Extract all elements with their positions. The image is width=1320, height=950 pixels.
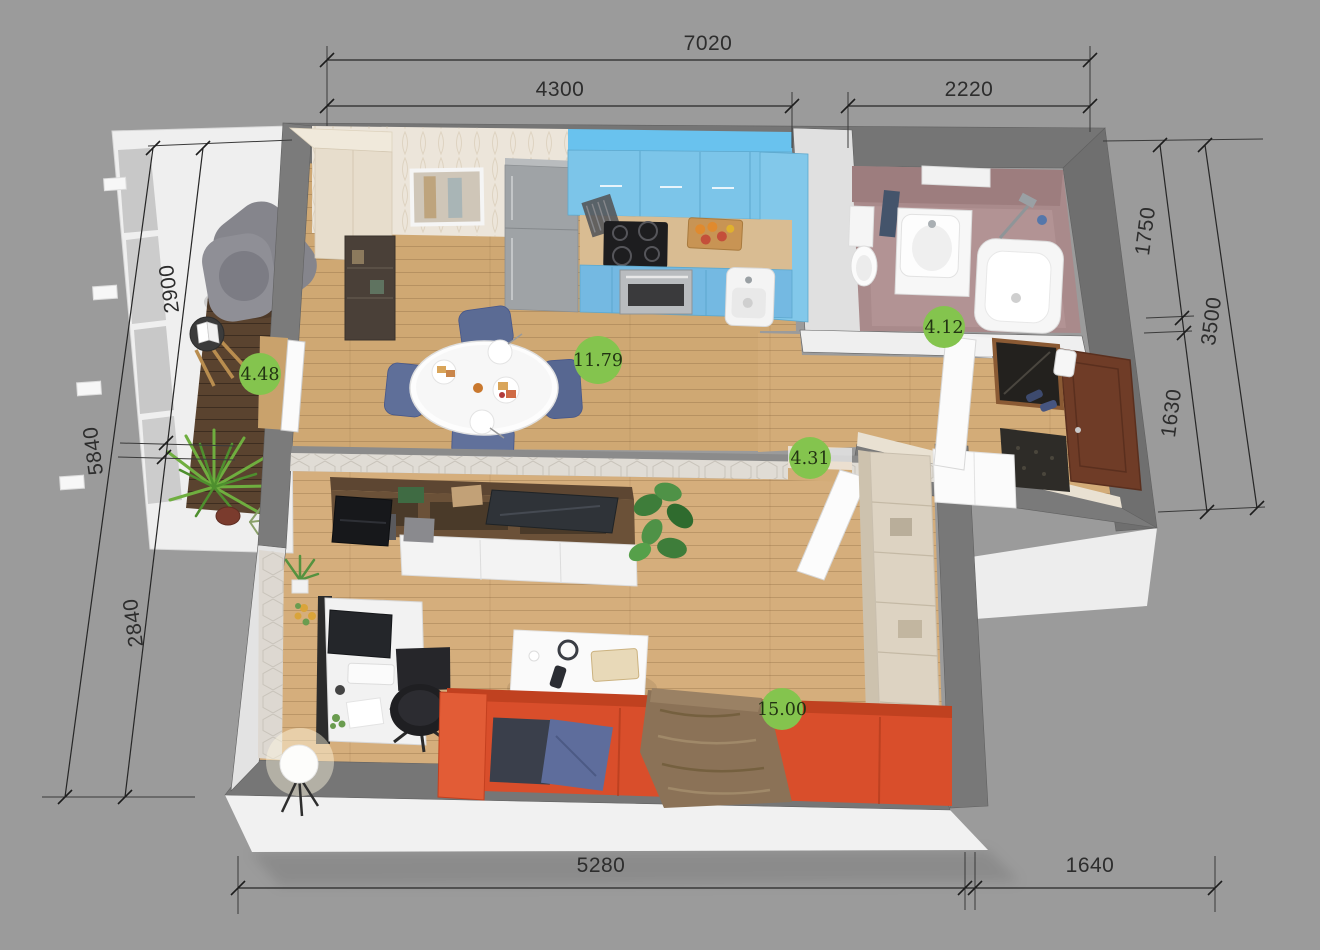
dim-top-left: 4300 <box>536 78 585 101</box>
area-badge-bathroom: 4.12 <box>923 306 965 348</box>
dim-bottom-right: 1640 <box>1066 854 1115 877</box>
sofa-arm <box>438 692 487 800</box>
shampoo-bottle <box>1037 215 1047 225</box>
plate <box>470 410 494 434</box>
oven <box>620 270 692 314</box>
hallway-area-value: 4.31 <box>791 449 830 469</box>
cooktop <box>603 221 668 268</box>
toilet <box>849 206 877 286</box>
washbasin-unit <box>895 208 972 297</box>
living-area-value: 15.00 <box>757 700 807 720</box>
kitchen-sink <box>725 267 775 327</box>
bathroom-shelf <box>922 166 990 187</box>
monitor <box>328 610 392 658</box>
fruit-board <box>687 218 742 251</box>
papers <box>346 698 383 728</box>
bathroom <box>849 166 1081 334</box>
dessert-plate <box>493 377 519 403</box>
area-badge-balcony: 4.48 <box>239 353 281 395</box>
books <box>398 487 424 503</box>
kitchen-area-value: 11.79 <box>573 351 623 371</box>
dim-top-right: 2220 <box>945 78 994 101</box>
storage-box <box>451 485 483 508</box>
area-badge-hallway: 4.31 <box>789 437 831 479</box>
dim-top-overall: 7020 <box>684 32 733 55</box>
dim-bottom-left: 5280 <box>577 854 626 877</box>
intercom <box>1053 349 1076 378</box>
floorplan-render: 4.48 11.79 4.12 4.31 15.00 7020 <box>0 0 1320 950</box>
pen-cup <box>335 685 345 695</box>
pillow-blue <box>541 719 613 791</box>
building-shadow <box>250 850 1020 886</box>
cup <box>529 651 539 661</box>
balcony-area-value: 4.48 <box>241 365 280 385</box>
kitchen-wall-blue <box>568 129 792 152</box>
sofa <box>438 688 952 808</box>
kitchen <box>290 126 808 340</box>
wall-painting <box>412 169 483 224</box>
fridge <box>505 158 578 312</box>
floorplan-scene: 4.48 11.79 4.12 4.31 15.00 7020 <box>0 0 1320 950</box>
tray <box>591 648 639 681</box>
vase <box>473 383 483 393</box>
door-handle <box>1075 427 1081 433</box>
keyboard <box>348 663 395 685</box>
corner-shelf <box>345 236 395 340</box>
bathroom-area-value: 4.12 <box>925 318 964 338</box>
